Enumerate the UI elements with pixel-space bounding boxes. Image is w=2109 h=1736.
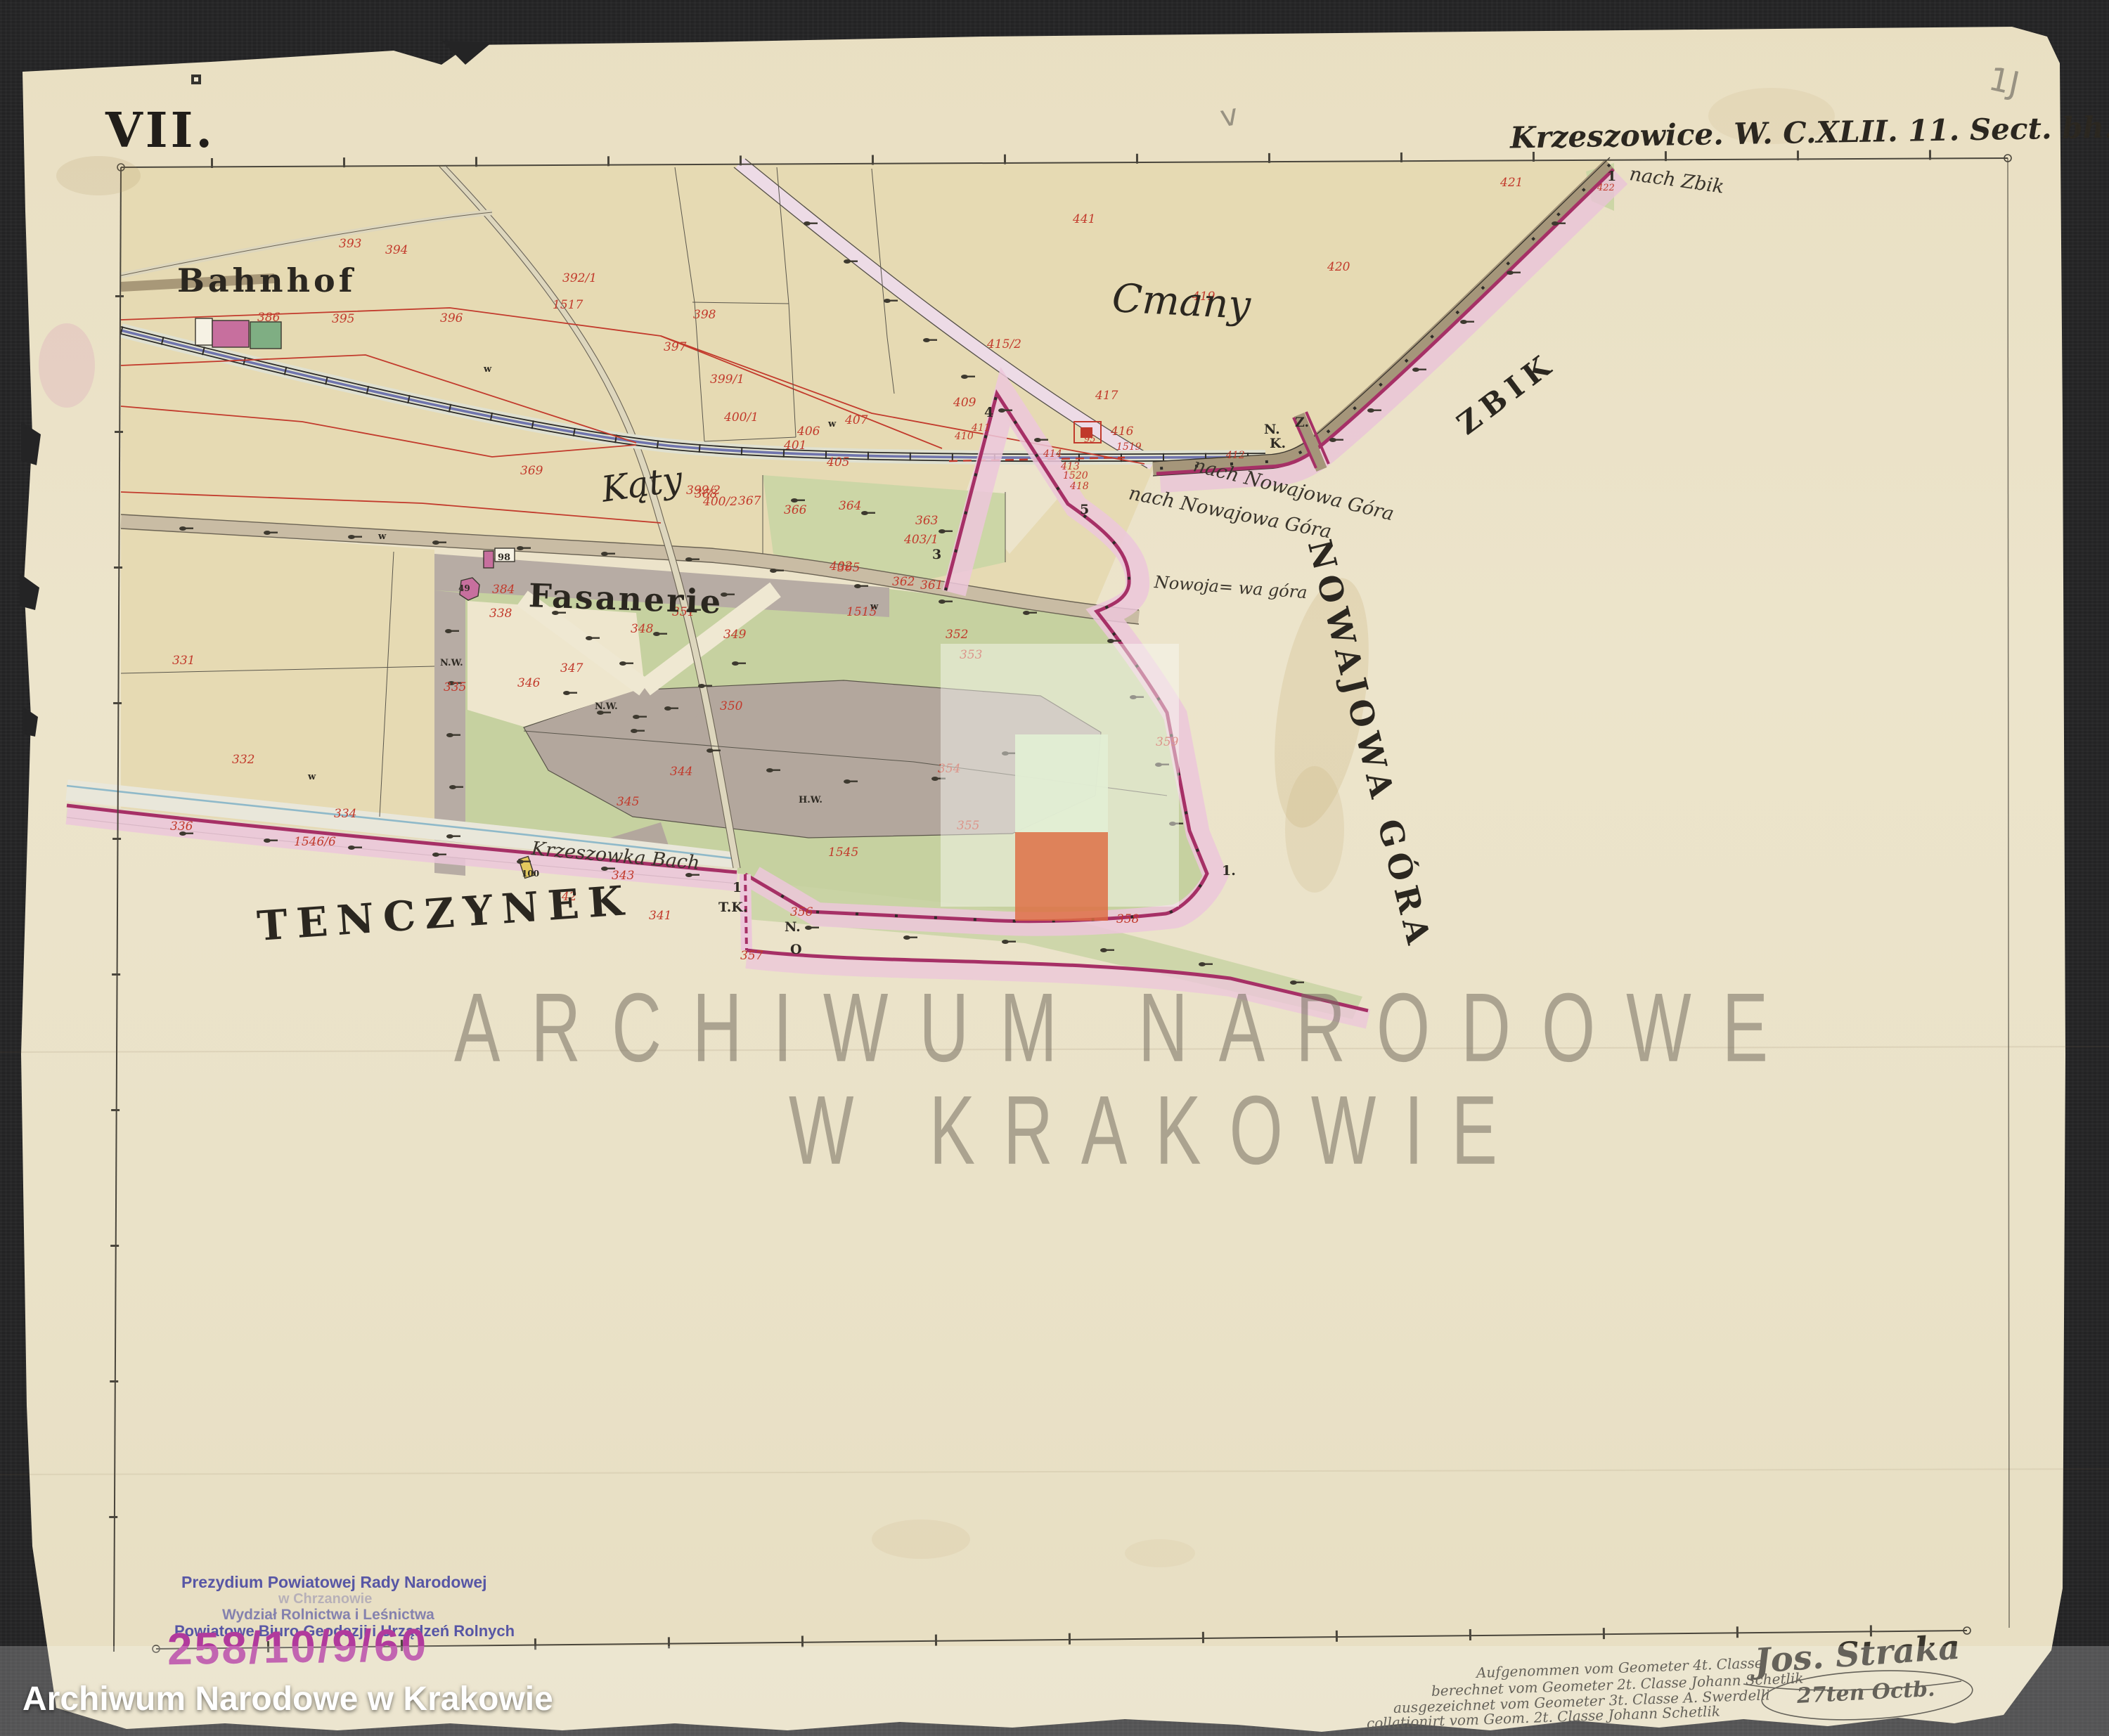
sheet-number: VII. bbox=[105, 103, 215, 159]
archive-caption: Archiwum Narodowe w Krakowie bbox=[22, 1680, 553, 1718]
archive-watermark-line2: W KRAKOWIE bbox=[789, 1074, 1526, 1186]
stamp-line: w Chrzanowie bbox=[278, 1591, 372, 1607]
archive-watermark-line1: ARCHIWUM NARODOWE bbox=[454, 971, 1799, 1084]
digital-overlay-orange bbox=[1015, 832, 1108, 921]
digital-overlay-green bbox=[1015, 734, 1108, 832]
scan-background: 393394392/11517386395396398397399/1400/1… bbox=[0, 0, 2109, 1736]
stamp-line: Prezydium Powiatowej Rady Narodowej bbox=[181, 1573, 487, 1592]
